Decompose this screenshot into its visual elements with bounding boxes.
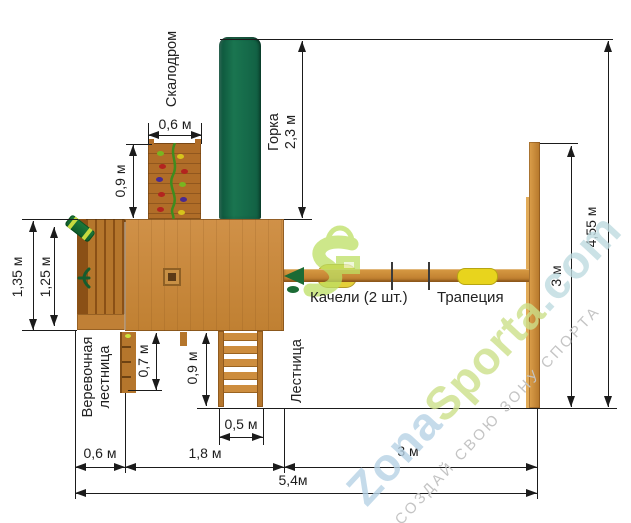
ladder-rung — [224, 333, 257, 341]
watermark-brand: ZonaSporta.com — [335, 203, 631, 516]
watermark-brand-zona: Zona — [336, 396, 452, 515]
climbing-hold — [157, 207, 164, 212]
label-ladder: Лестница — [289, 339, 305, 403]
ladder-rung — [224, 346, 257, 354]
dim-balcony_inner-line — [54, 227, 55, 326]
playground-schematic-canvas: Скалодром Горка 2,3 м Веревочная лестниц… — [0, 0, 631, 523]
label-rope-ladder: Веревочная лестница — [80, 337, 114, 418]
climbing-hold — [159, 164, 166, 169]
dim-rope_ladder_h-arrow — [152, 379, 160, 390]
dim-ladder_w-arrow — [219, 433, 230, 441]
climbing-hold — [179, 182, 186, 187]
balcony-roof-seam — [124, 222, 126, 330]
dim-label-bottom_mid: 1,8 м — [189, 445, 222, 461]
ladder-rung — [224, 372, 257, 380]
trapeze-bar — [457, 268, 498, 285]
rope-ladder-rung — [122, 376, 131, 378]
ladder-rail-left — [218, 331, 224, 407]
dim-total_width-arrow — [526, 489, 537, 497]
ladder-rail-right — [257, 331, 263, 407]
dim-rope_ladder_h-arrow — [152, 333, 160, 344]
dim-label-ladder_h: 0,9 м — [184, 352, 200, 385]
extension-line-6 — [128, 390, 162, 391]
dim-balcony_outer-arrow — [29, 221, 37, 232]
dim-bottom_right-arrow — [526, 463, 537, 471]
dim-bottom_right-line — [284, 467, 537, 468]
dim-bottom_mid-line — [125, 467, 284, 468]
dim-balcony_inner-arrow — [50, 227, 58, 238]
dim-climb_height-arrow — [129, 145, 137, 156]
climbing-hold — [156, 177, 163, 182]
dim-label-total_width: 5,4м — [278, 472, 307, 488]
extension-line-3 — [22, 219, 78, 220]
ladder-rung — [224, 359, 257, 367]
label-rope-ladder-line2: лестница — [97, 337, 114, 418]
dim-balcony_outer-line — [33, 221, 34, 330]
rope-ladder — [120, 332, 136, 393]
swing-hanger-tick — [428, 262, 430, 290]
extension-line-2 — [284, 219, 312, 220]
ladder-rung — [224, 385, 257, 393]
dim-climb_width-arrow — [148, 131, 159, 139]
label-trapeze: Трапеция — [437, 289, 504, 306]
extension-line-11 — [263, 409, 264, 445]
swing-post — [529, 142, 540, 408]
dim-balcony_outer-arrow — [29, 319, 37, 330]
climbing-hold — [177, 154, 184, 159]
rope-ladder-rung — [122, 346, 131, 348]
swing-hanger-tick — [391, 262, 393, 290]
label-slide: Горка 2,3 м — [266, 113, 300, 151]
label-climbing-wall: Скалодром — [164, 31, 180, 107]
dim-ladder_w-arrow — [252, 433, 263, 441]
extension-line-15 — [537, 409, 538, 499]
hinge-tab — [180, 332, 187, 346]
dim-label-climb_width: 0,6 м — [159, 116, 192, 132]
rope-ladder-hold — [125, 334, 131, 338]
extension-line-0 — [220, 39, 613, 40]
dim-total_height-arrow — [604, 41, 612, 52]
label-slide-dim: 2,3 м — [283, 113, 300, 151]
watermark-slogan: СОЗДАЙ СВОЮ ЗОНУ СПОРТА — [392, 302, 604, 523]
extension-line-7 — [197, 408, 617, 409]
dim-bottom_mid-arrow — [125, 463, 136, 471]
dim-label-rope_ladder_h: 0,7 м — [135, 345, 151, 378]
balcony-bottom-board — [77, 314, 125, 330]
dim-label-balcony_inner: 1,25 м — [37, 257, 53, 298]
extension-line-13 — [125, 393, 126, 473]
dim-ladder_h-arrow — [202, 333, 210, 344]
label-rope-ladder-line1: Веревочная — [80, 337, 97, 418]
wheel-handle — [76, 267, 94, 289]
slide-top-view — [219, 37, 261, 219]
climbing-hold — [181, 169, 188, 174]
rope-ladder-rung — [122, 361, 131, 363]
roof-peak-hole — [168, 273, 176, 281]
dim-total_width-line — [75, 493, 537, 494]
climbing-wall — [148, 143, 201, 219]
dim-label-bottom_right: 3 м — [397, 443, 418, 459]
dim-right_post-arrow — [567, 396, 575, 407]
dim-climb_width-arrow — [191, 131, 202, 139]
dim-total_width-arrow — [75, 489, 86, 497]
climbing-hold — [178, 210, 185, 215]
label-swings: Качели (2 шт.) — [310, 289, 408, 306]
dim-slide_height-arrow — [298, 41, 306, 52]
roof-peak-square — [163, 268, 181, 286]
dim-bottom_left-arrow — [114, 463, 125, 471]
extension-line-12 — [75, 331, 76, 499]
dim-label-balcony_outer: 1,35 м — [9, 257, 25, 298]
dim-bottom_right-arrow — [284, 463, 295, 471]
dim-label-total_height: 4,55 м — [583, 207, 599, 248]
dim-total_height-line — [608, 41, 609, 407]
dim-slide_height-line — [302, 41, 303, 218]
dim-ladder_h-arrow — [202, 395, 210, 406]
dim-climb_height-arrow — [129, 207, 137, 218]
dim-bottom_mid-arrow — [273, 463, 284, 471]
telescope-band — [82, 228, 93, 241]
tower-roof — [125, 219, 284, 331]
dim-label-climb_height: 0,9 м — [112, 165, 128, 198]
dim-bottom_left-arrow — [75, 463, 86, 471]
dim-right_post-line — [571, 146, 572, 407]
climbing-hold — [158, 192, 165, 197]
climbing-hold — [180, 197, 187, 202]
dim-label-right_post: 3 м — [548, 265, 564, 286]
dim-slide_height-arrow — [298, 207, 306, 218]
dim-total_height-arrow — [604, 396, 612, 407]
dim-label-ladder_w: 0,5 м — [225, 416, 258, 432]
extension-line-1 — [540, 143, 578, 144]
dim-label-bottom_left: 0,6 м — [84, 445, 117, 461]
climbing-hold — [157, 151, 164, 156]
dim-balcony_inner-arrow — [50, 315, 58, 326]
label-slide-name: Горка — [266, 113, 283, 151]
dim-right_post-arrow — [567, 146, 575, 157]
extension-line-4 — [22, 330, 77, 331]
